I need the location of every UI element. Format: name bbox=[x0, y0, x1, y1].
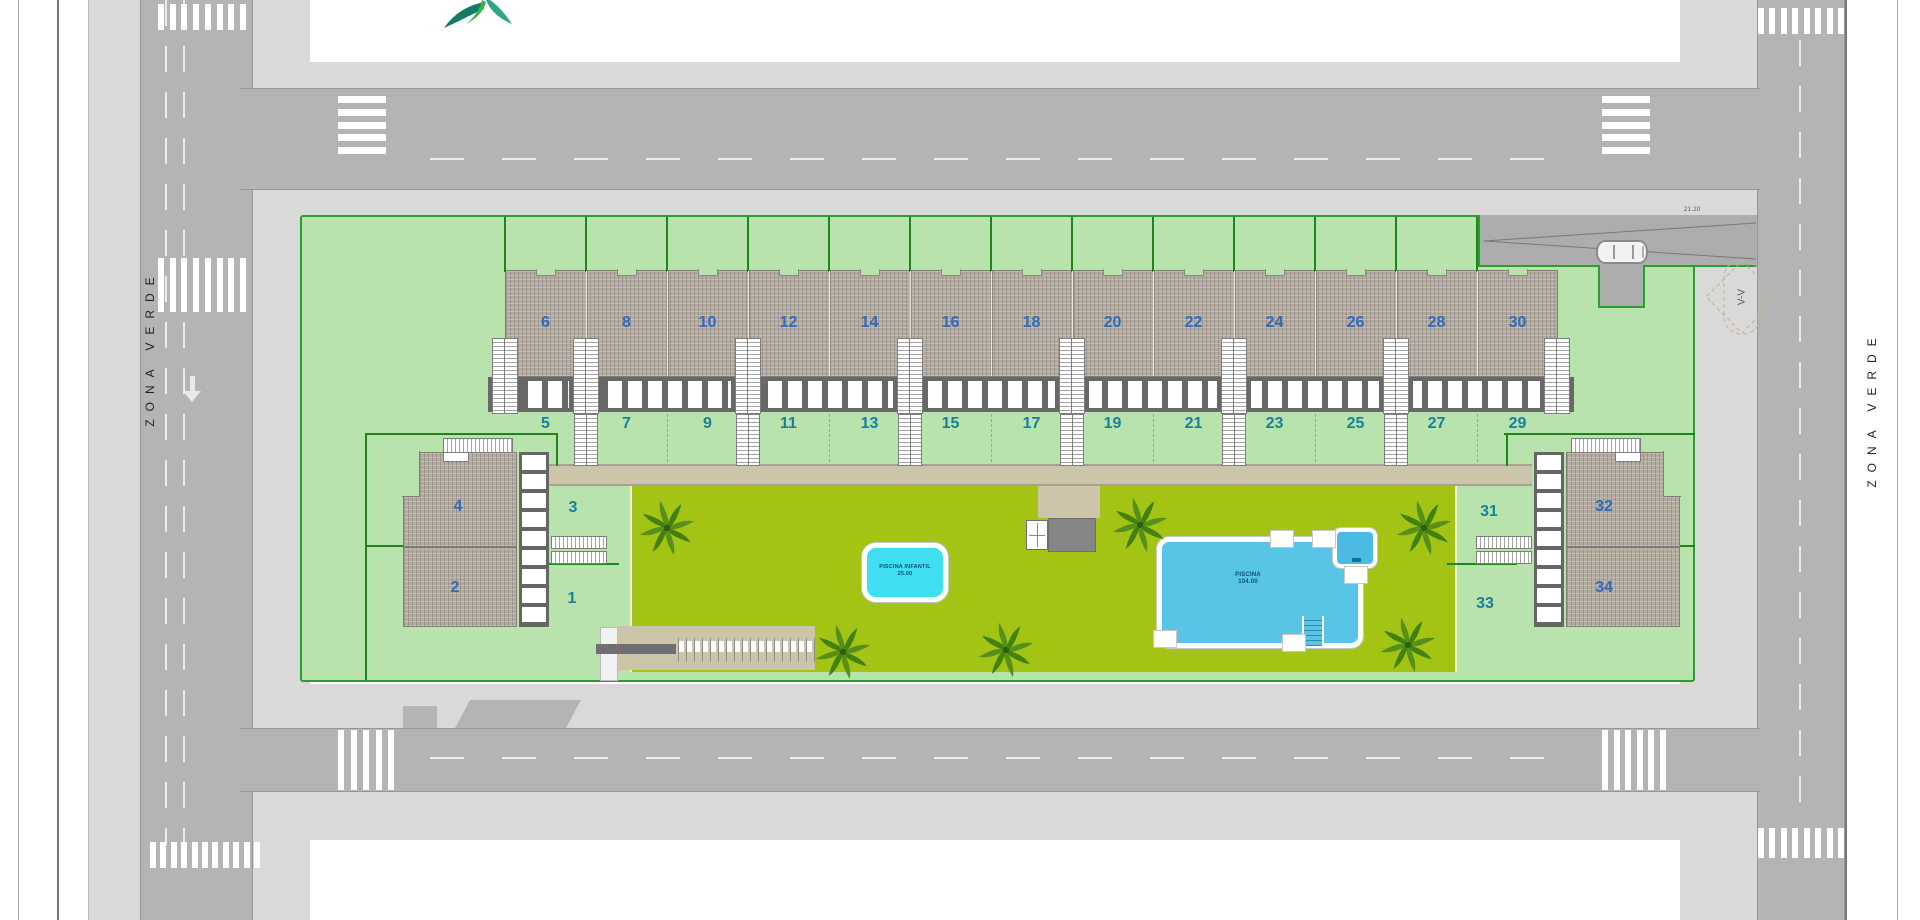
section-marker-label: V-V bbox=[1737, 289, 1748, 305]
road-left bbox=[140, 0, 253, 920]
unit-label: 26 bbox=[1342, 313, 1370, 333]
unit-label: 10 bbox=[694, 313, 722, 333]
garden-unit-label: 25 bbox=[1342, 414, 1370, 434]
stairs bbox=[443, 438, 513, 453]
curb-cut-top-right bbox=[1561, 166, 1601, 189]
unit-label: 24 bbox=[1261, 313, 1289, 333]
garden-divider-dashed bbox=[1153, 414, 1154, 462]
roof-divider bbox=[1153, 271, 1154, 376]
parcel-line bbox=[365, 545, 405, 547]
stairwell bbox=[573, 338, 599, 414]
roof-notch bbox=[698, 269, 718, 276]
entry-box bbox=[1615, 452, 1641, 462]
bike-racks bbox=[678, 638, 815, 662]
parcel-line bbox=[556, 433, 558, 466]
garden-divider-line bbox=[747, 217, 749, 272]
lane-dash-left-1 bbox=[165, 0, 167, 845]
path-patch bbox=[1038, 486, 1100, 518]
palm-tree-icon bbox=[638, 499, 696, 557]
site-plan-canvas: ZONA VERDE ZONA VERDE PISCINA INFANTIL25… bbox=[0, 0, 1920, 920]
garden-divider-dashed bbox=[1477, 414, 1478, 462]
bridge-stairs bbox=[551, 551, 607, 564]
stairwell bbox=[897, 338, 923, 414]
garden-unit-label: 1 bbox=[558, 589, 586, 609]
parcel-line bbox=[1504, 433, 1695, 435]
roof-notch bbox=[1427, 269, 1447, 276]
unit-label: 30 bbox=[1504, 313, 1532, 333]
garden-unit-label: 31 bbox=[1475, 502, 1503, 522]
roof-notch bbox=[1265, 269, 1285, 276]
unit-label: 20 bbox=[1099, 313, 1127, 333]
stairs bbox=[574, 414, 598, 466]
zona-verde-label-left: ZONA VERDE bbox=[143, 269, 157, 426]
roof-divider bbox=[829, 271, 830, 376]
driveway-ramp bbox=[1598, 265, 1645, 308]
crosswalk bbox=[338, 730, 394, 790]
roof-divider bbox=[991, 271, 992, 376]
parcel-line bbox=[365, 433, 558, 435]
roof-notch bbox=[941, 269, 961, 276]
roof-divider bbox=[667, 271, 668, 376]
unit-label: 32 bbox=[1590, 497, 1618, 517]
unit-label: 22 bbox=[1180, 313, 1208, 333]
garden-unit-label: 5 bbox=[532, 414, 560, 434]
lane-dash-top bbox=[430, 158, 1560, 160]
lane-dash-bottom bbox=[430, 757, 1560, 759]
unit-label: 4 bbox=[444, 497, 472, 517]
roof-notch bbox=[779, 269, 799, 276]
garden-divider-line bbox=[990, 217, 992, 272]
driveway-dimension: 21.20 bbox=[1684, 207, 1701, 213]
garden-unit-label: 13 bbox=[856, 414, 884, 434]
unit-label: 8 bbox=[613, 313, 641, 333]
parcel-line bbox=[365, 433, 367, 680]
road-right bbox=[1757, 0, 1845, 920]
stairwell bbox=[1059, 338, 1085, 414]
garden-divider-line bbox=[1233, 217, 1235, 272]
garden-divider-line bbox=[1314, 217, 1316, 272]
driveway-apron-south bbox=[455, 700, 581, 728]
garden-unit-label: 21 bbox=[1180, 414, 1208, 434]
traffic-arrow bbox=[190, 376, 195, 391]
road-top bbox=[240, 88, 1760, 190]
unit-label: 28 bbox=[1423, 313, 1451, 333]
garden-unit-label: 9 bbox=[694, 414, 722, 434]
palm-tree-icon bbox=[1111, 496, 1169, 554]
garden-unit-label: 17 bbox=[1018, 414, 1046, 434]
garden-divider-dashed bbox=[991, 414, 992, 462]
crosswalk bbox=[158, 4, 246, 30]
stairs bbox=[898, 414, 922, 466]
crosswalk bbox=[1758, 8, 1844, 34]
stairs bbox=[1384, 414, 1408, 466]
unit-label: 12 bbox=[775, 313, 803, 333]
unit-label: 16 bbox=[937, 313, 965, 333]
frame-line-left-outer bbox=[18, 0, 19, 920]
garden-unit-label: 23 bbox=[1261, 414, 1289, 434]
stairs bbox=[1222, 414, 1246, 466]
garden-divider-dashed bbox=[1315, 414, 1316, 462]
garden-divider-line bbox=[828, 217, 830, 272]
roof-notch bbox=[1022, 269, 1042, 276]
roof-notch bbox=[1103, 269, 1123, 276]
zona-verde-label-right: ZONA VERDE bbox=[1865, 330, 1879, 487]
garden-divider-line bbox=[1071, 217, 1073, 272]
palm-tree-icon bbox=[1379, 616, 1437, 674]
garden-divider-line bbox=[1395, 217, 1397, 272]
parcel-line bbox=[1506, 433, 1508, 466]
crosswalk bbox=[1758, 828, 1844, 858]
terrace-column-right bbox=[1534, 452, 1564, 627]
stairwell bbox=[735, 338, 761, 414]
frame-line-right-inner bbox=[1845, 0, 1847, 920]
pool-pad bbox=[1270, 530, 1294, 548]
jacuzzi-mark bbox=[1352, 558, 1361, 562]
garden-divider-line bbox=[666, 217, 668, 272]
roof-notch bbox=[536, 269, 556, 276]
garden-divider-dashed bbox=[667, 414, 668, 462]
roof-notch bbox=[402, 451, 420, 497]
garden-unit-label: 3 bbox=[559, 498, 587, 518]
crosswalk bbox=[338, 96, 386, 154]
roof-notch bbox=[617, 269, 637, 276]
bridge-stairs bbox=[1476, 551, 1532, 564]
building-left bbox=[403, 452, 517, 627]
traffic-arrow-head-icon bbox=[183, 391, 201, 402]
stairwell bbox=[1221, 338, 1247, 414]
curb-cut-bottom bbox=[403, 706, 437, 728]
crosswalk bbox=[1602, 730, 1666, 790]
stairs bbox=[1060, 414, 1084, 466]
garden-unit-label: 19 bbox=[1099, 414, 1127, 434]
roof-divider bbox=[1477, 271, 1478, 376]
central-walkway bbox=[549, 464, 1532, 486]
unit-label: 6 bbox=[532, 313, 560, 333]
frame-line-right-outer bbox=[1897, 0, 1898, 920]
garden-unit-label: 7 bbox=[613, 414, 641, 434]
lane-dash-left-2 bbox=[183, 0, 185, 845]
palm-tree-icon bbox=[977, 621, 1035, 679]
unit-label: 14 bbox=[856, 313, 884, 333]
crosswalk bbox=[150, 842, 260, 868]
equipment-box bbox=[1026, 520, 1048, 550]
roof-notch bbox=[860, 269, 880, 276]
shower-structure bbox=[1048, 518, 1096, 552]
lane-dash-right bbox=[1799, 40, 1801, 820]
white-path bbox=[600, 627, 618, 681]
logo-fragment-icon bbox=[436, 0, 532, 30]
roof-notch bbox=[1663, 451, 1681, 497]
garden-divider-line bbox=[909, 217, 911, 272]
palm-tree-icon bbox=[814, 623, 872, 681]
stairs bbox=[1571, 438, 1641, 453]
garden-unit-label: 27 bbox=[1423, 414, 1451, 434]
curb-cut-top-left bbox=[387, 162, 413, 189]
main-pool-label: PISCINA104.00 bbox=[1218, 572, 1278, 586]
pool-pad bbox=[1282, 634, 1306, 652]
bridge-stairs bbox=[551, 536, 607, 549]
stairs bbox=[736, 414, 760, 466]
pool-pad bbox=[1312, 530, 1336, 548]
terrace-column-left bbox=[519, 452, 549, 627]
unit-label: 2 bbox=[441, 578, 469, 598]
stairwell bbox=[1544, 338, 1570, 414]
section-marker: V-V bbox=[1700, 234, 1784, 360]
pool-pad bbox=[1153, 630, 1177, 648]
roof-notch bbox=[1508, 269, 1528, 276]
pool-pad bbox=[1344, 566, 1368, 584]
garden-divider-line bbox=[504, 217, 506, 272]
frame-line-left-inner bbox=[57, 0, 59, 920]
unit-label: 34 bbox=[1590, 578, 1618, 598]
stairwell bbox=[1383, 338, 1409, 414]
crosswalk bbox=[1602, 96, 1650, 154]
garden-unit-label: 15 bbox=[937, 414, 965, 434]
garden-unit-label: 11 bbox=[775, 414, 803, 434]
entry-box bbox=[443, 452, 469, 462]
garden-unit-label: 33 bbox=[1471, 594, 1499, 614]
palm-tree-icon bbox=[1395, 499, 1453, 557]
crosswalk bbox=[158, 258, 246, 312]
garden-divider-line bbox=[585, 217, 587, 272]
road-bottom bbox=[240, 728, 1760, 792]
unit-label: 18 bbox=[1018, 313, 1046, 333]
garden-divider-dashed bbox=[829, 414, 830, 462]
bridge-stairs bbox=[1476, 536, 1532, 549]
jacuzzi bbox=[1333, 528, 1377, 568]
pergola bbox=[596, 644, 676, 654]
roof-notch bbox=[1346, 269, 1366, 276]
garden-unit-label: 29 bbox=[1504, 414, 1532, 434]
roof-notch bbox=[1184, 269, 1204, 276]
car-icon bbox=[1596, 240, 1648, 264]
parcel-line bbox=[1678, 545, 1695, 547]
kids-pool-label: PISCINA INFANTIL25.00 bbox=[870, 564, 940, 577]
garden-divider-line bbox=[1152, 217, 1154, 272]
roof-divider bbox=[1315, 271, 1316, 376]
stairwell bbox=[492, 338, 518, 414]
